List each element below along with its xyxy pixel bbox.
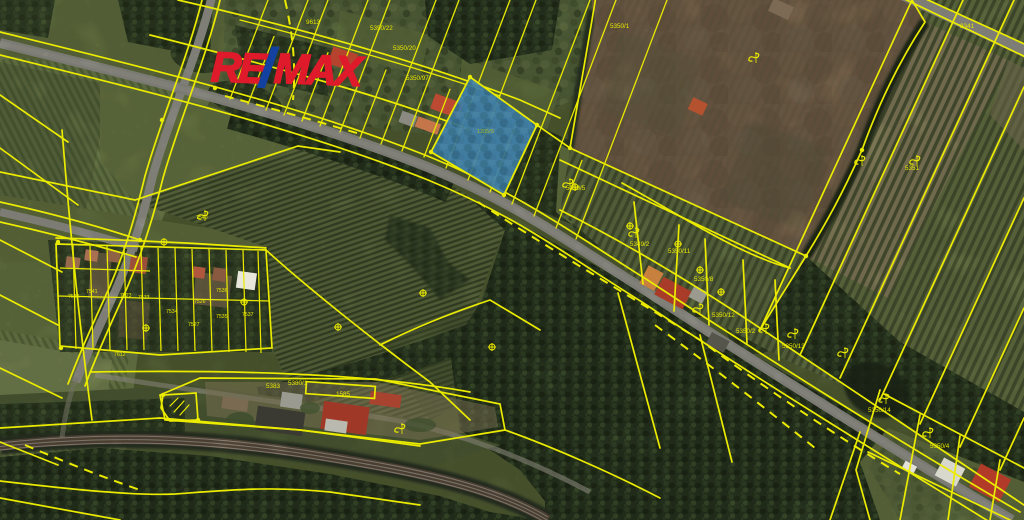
svg-text:5350/97: 5350/97 <box>406 75 429 82</box>
svg-text:9613: 9613 <box>306 19 321 26</box>
svg-text:7533: 7533 <box>138 295 150 301</box>
svg-text:7532: 7532 <box>68 294 80 300</box>
svg-text:7534: 7534 <box>166 309 178 315</box>
svg-text:7523: 7523 <box>120 293 132 299</box>
svg-text:5351: 5351 <box>905 165 920 172</box>
svg-text:5350/13: 5350/13 <box>782 343 805 350</box>
svg-text:5350/22: 5350/22 <box>370 25 393 32</box>
svg-text:5350/4: 5350/4 <box>930 443 950 450</box>
svg-text:7537: 7537 <box>242 312 254 318</box>
svg-text:7536: 7536 <box>216 288 228 294</box>
svg-text:5350/12: 5350/12 <box>712 312 735 319</box>
svg-text:5350/8: 5350/8 <box>694 276 714 283</box>
svg-text:1585: 1585 <box>336 391 351 398</box>
svg-text:7526: 7526 <box>194 299 206 305</box>
svg-text:5350/20: 5350/20 <box>393 45 416 52</box>
svg-text:7527: 7527 <box>188 322 200 328</box>
svg-text:7535: 7535 <box>216 314 228 320</box>
svg-text:7541: 7541 <box>86 289 98 295</box>
svg-text:5350/11: 5350/11 <box>668 248 691 255</box>
svg-text:5349/2: 5349/2 <box>630 241 650 248</box>
svg-text:3341: 3341 <box>960 23 975 30</box>
svg-text:5380/1: 5380/1 <box>288 380 308 387</box>
svg-text:5350/2: 5350/2 <box>736 328 756 335</box>
svg-text:5350/1: 5350/1 <box>610 23 630 30</box>
svg-text:5383: 5383 <box>266 383 281 390</box>
svg-text:7612: 7612 <box>114 352 126 358</box>
svg-text:5350/14: 5350/14 <box>868 407 891 414</box>
svg-text:5350/5: 5350/5 <box>566 185 586 192</box>
svg-text:MAX: MAX <box>273 45 366 96</box>
svg-text:1205/9: 1205/9 <box>477 129 494 135</box>
